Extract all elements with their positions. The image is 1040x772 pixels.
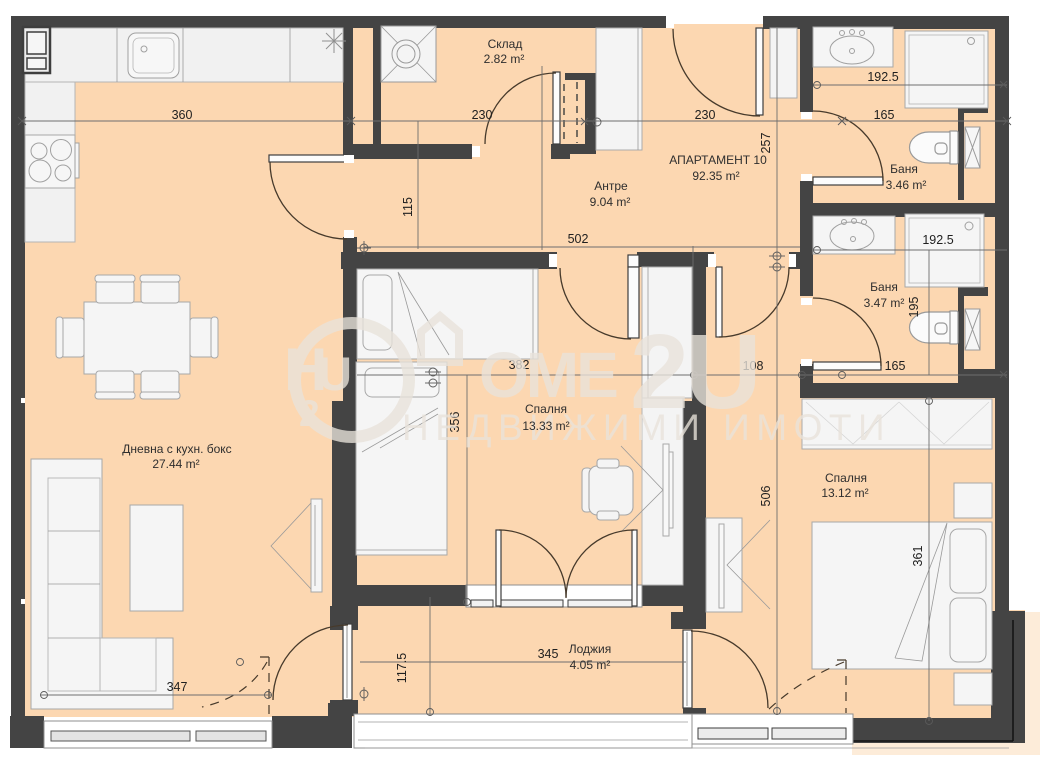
svg-text:92.35 m²: 92.35 m² <box>692 169 739 183</box>
svg-text:115: 115 <box>401 197 415 217</box>
svg-text:Лоджия: Лоджия <box>569 642 612 656</box>
svg-text:U: U <box>318 347 352 400</box>
svg-text:Антре: Антре <box>594 179 628 193</box>
svg-text:27.44 m²: 27.44 m² <box>152 457 199 471</box>
svg-text:192.5: 192.5 <box>922 233 953 247</box>
svg-text:Баня: Баня <box>870 280 898 294</box>
svg-text:НЕДВИЖИМИ ИМОТИ: НЕДВИЖИМИ ИМОТИ <box>402 407 891 448</box>
svg-text:13.33 m²: 13.33 m² <box>522 419 569 433</box>
svg-text:506: 506 <box>759 486 773 507</box>
svg-text:Склад: Склад <box>488 37 523 51</box>
svg-text:502: 502 <box>568 232 589 246</box>
svg-text:9.04 m²: 9.04 m² <box>590 195 631 209</box>
svg-text:OME: OME <box>479 339 617 411</box>
svg-text:Дневна с кухн. бокс: Дневна с кухн. бокс <box>122 442 231 456</box>
svg-text:165: 165 <box>874 108 895 122</box>
svg-text:4.05 m²: 4.05 m² <box>570 658 611 672</box>
svg-text:230: 230 <box>472 108 493 122</box>
svg-text:192.5: 192.5 <box>867 70 898 84</box>
svg-text:117.5: 117.5 <box>395 653 409 683</box>
svg-text:Баня: Баня <box>890 162 918 176</box>
svg-text:2: 2 <box>299 393 320 434</box>
svg-text:345: 345 <box>538 647 559 661</box>
svg-text:347: 347 <box>167 680 188 694</box>
svg-text:195: 195 <box>907 297 921 318</box>
svg-text:361: 361 <box>911 546 925 567</box>
svg-text:3.47 m²: 3.47 m² <box>864 296 905 310</box>
svg-text:Спалня: Спалня <box>525 402 567 416</box>
svg-text:165: 165 <box>885 359 906 373</box>
svg-text:Спалня: Спалня <box>825 471 867 485</box>
svg-text:3.46 m²: 3.46 m² <box>886 178 927 192</box>
svg-text:257: 257 <box>759 133 773 154</box>
svg-text:АПАРТАМЕНТ 10: АПАРТАМЕНТ 10 <box>669 153 767 167</box>
svg-text:13.12 m²: 13.12 m² <box>821 486 868 500</box>
svg-text:360: 360 <box>172 108 193 122</box>
svg-text:230: 230 <box>695 108 716 122</box>
svg-text:2.82 m²: 2.82 m² <box>484 52 525 66</box>
